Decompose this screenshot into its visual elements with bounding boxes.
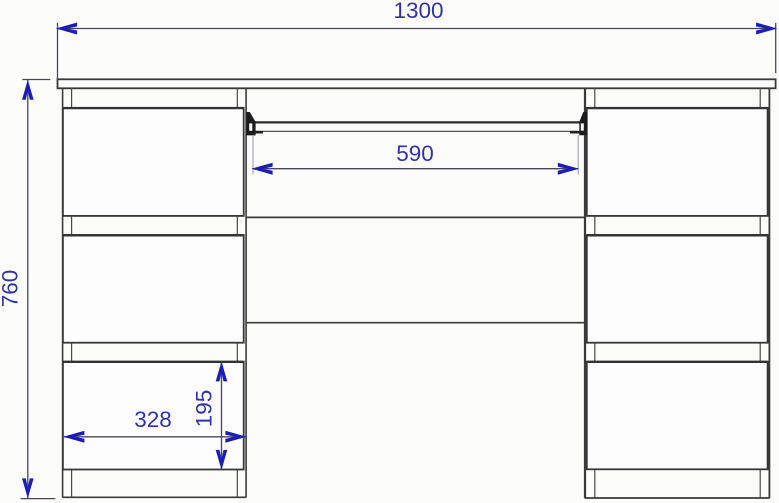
svg-text:760: 760 bbox=[0, 270, 23, 308]
svg-text:590: 590 bbox=[396, 141, 434, 166]
svg-text:328: 328 bbox=[134, 407, 172, 432]
svg-text:1300: 1300 bbox=[393, 0, 443, 23]
svg-text:195: 195 bbox=[192, 390, 217, 428]
